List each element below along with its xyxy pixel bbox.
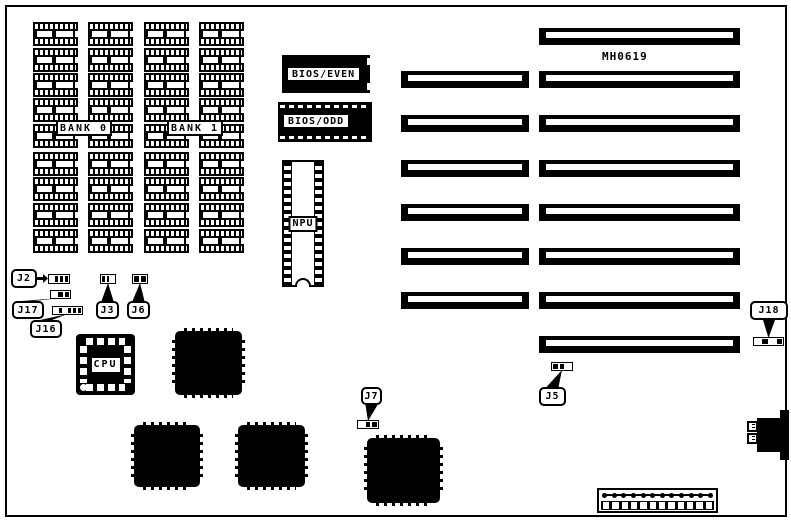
pin-row-top xyxy=(35,50,76,55)
power-socket xyxy=(640,502,646,509)
pin1-notch xyxy=(241,31,244,37)
pin-row-top xyxy=(201,179,242,184)
power-socket xyxy=(612,502,618,509)
slot-opening xyxy=(546,164,733,170)
jumper-label-j3: J3 xyxy=(96,301,119,319)
pin-row-bottom xyxy=(35,65,76,70)
chip-window xyxy=(92,186,107,192)
jumper-pin-closed xyxy=(372,422,377,427)
jumper-pin-closed xyxy=(102,276,105,282)
notch xyxy=(367,58,370,65)
pin-row-bottom xyxy=(90,169,131,174)
slot-opening xyxy=(546,208,733,214)
chip-window xyxy=(148,133,163,139)
memory-chip xyxy=(199,98,244,122)
chip-window xyxy=(92,161,107,167)
jumper-pin-closed xyxy=(553,364,558,369)
memory-chip xyxy=(88,22,133,46)
pin-ticks xyxy=(184,328,233,331)
memory-chip xyxy=(33,229,78,253)
power-pin xyxy=(698,493,703,498)
pin1-notch xyxy=(241,133,244,139)
expansion-slot-short xyxy=(401,248,529,265)
bank-1-label: BANK 1 xyxy=(167,120,223,136)
expansion-slot-long xyxy=(539,160,740,177)
contact-pads xyxy=(86,384,125,391)
jumper-pin-closed xyxy=(78,308,81,313)
pin1-notch xyxy=(130,212,133,218)
jumper-block-j6 xyxy=(132,274,148,284)
bank-0-label: BANK 0 xyxy=(56,120,112,136)
jumper-block-j3 xyxy=(100,274,116,284)
power-pin xyxy=(602,493,607,498)
jumper-block-j16 xyxy=(52,306,83,315)
bios-even-label: BIOS/EVEN xyxy=(287,67,360,81)
pin1-notch xyxy=(75,82,78,88)
memory-chip xyxy=(88,98,133,122)
pin-row-top xyxy=(35,24,76,29)
pin-row-bottom xyxy=(90,90,131,95)
slot-opening xyxy=(546,340,733,346)
contact-pads xyxy=(86,338,125,345)
pin-row-top xyxy=(90,50,131,55)
chip-window xyxy=(111,82,128,88)
plug-pins xyxy=(752,436,755,441)
chip-window xyxy=(148,212,163,218)
chip-window xyxy=(167,238,184,244)
pin-row-top xyxy=(35,179,76,184)
keyboard-connector-body xyxy=(757,418,781,452)
memory-chip xyxy=(33,48,78,72)
qfp-chip xyxy=(134,425,200,487)
chip-window xyxy=(222,133,239,139)
slot-opening xyxy=(408,75,522,81)
jumper-pin-open xyxy=(52,292,56,297)
jumper-pin-closed xyxy=(60,276,63,282)
chip-window xyxy=(92,238,107,244)
pin-row-top xyxy=(90,231,131,236)
memory-chip xyxy=(199,152,244,176)
jumper-pin-open xyxy=(111,276,114,282)
pin-row-bottom xyxy=(146,39,187,44)
chip-window xyxy=(56,238,73,244)
power-socket xyxy=(622,502,628,509)
pin1-notch xyxy=(130,161,133,167)
chip-window xyxy=(56,57,73,63)
pin-row-top xyxy=(35,154,76,159)
npu-label: NPU xyxy=(288,216,317,232)
chip-window xyxy=(37,133,52,139)
chip-window xyxy=(222,161,239,167)
pin-ticks xyxy=(247,422,296,425)
pin1-notch xyxy=(186,107,189,113)
slot-opening xyxy=(408,252,522,258)
chip-window xyxy=(203,186,218,192)
chip-window xyxy=(167,161,184,167)
jumper-pin-closed xyxy=(366,422,371,427)
pin-row-bottom xyxy=(201,65,242,70)
memory-chip xyxy=(199,177,244,201)
keyboard-connector-plug xyxy=(747,421,758,432)
chip-window xyxy=(56,31,73,37)
pin-row-top xyxy=(146,100,187,105)
jumper-block-j17 xyxy=(50,290,71,299)
cpu-label: CPU xyxy=(89,356,121,374)
memory-chip xyxy=(88,48,133,72)
memory-chip xyxy=(88,73,133,97)
pin-ticks xyxy=(376,435,431,438)
slot-opening xyxy=(408,208,522,214)
jumper-pin-open xyxy=(566,364,571,369)
pin-row-top xyxy=(201,154,242,159)
expansion-slot-short xyxy=(401,204,529,221)
pin1-marker xyxy=(80,384,87,391)
memory-chip xyxy=(33,177,78,201)
pin-row-top xyxy=(146,205,187,210)
pin-row-top xyxy=(201,75,242,80)
pin1-notch xyxy=(186,161,189,167)
chip-window xyxy=(92,82,107,88)
memory-chip xyxy=(144,203,189,227)
pin-row-bottom xyxy=(146,169,187,174)
pin-row-bottom xyxy=(35,90,76,95)
pin-row-top xyxy=(201,24,242,29)
expansion-slot-long xyxy=(539,292,740,309)
pin-row-top xyxy=(146,75,187,80)
power-pin xyxy=(689,493,694,498)
jumper-pin-closed xyxy=(65,292,69,297)
chip-window xyxy=(111,238,128,244)
slot-opening xyxy=(408,164,522,170)
power-socket xyxy=(668,502,674,509)
qfp-chip xyxy=(175,331,242,395)
pin-row-top xyxy=(35,75,76,80)
chip-window xyxy=(56,212,73,218)
pin-row-bottom xyxy=(201,141,242,146)
chip-window xyxy=(148,31,163,37)
pin-row-top xyxy=(280,105,370,108)
pin1-notch xyxy=(75,57,78,63)
power-pin xyxy=(660,493,665,498)
jumper-pin-closed xyxy=(73,308,76,313)
pin1-notch xyxy=(241,107,244,113)
memory-chip xyxy=(144,177,189,201)
power-pin xyxy=(631,493,636,498)
expansion-slot-long xyxy=(539,336,740,353)
memory-chip xyxy=(199,48,244,72)
jumper-block-j7 xyxy=(357,420,379,429)
bios-odd-chip: BIOS/ODD xyxy=(278,102,372,142)
pin-row-top xyxy=(90,100,131,105)
chip-window xyxy=(111,186,128,192)
power-socket xyxy=(687,502,693,509)
chip-window xyxy=(37,107,52,113)
part-number-label: MH0619 xyxy=(602,50,648,63)
pin1-notch xyxy=(75,107,78,113)
memory-chip xyxy=(88,152,133,176)
pin-row-bottom xyxy=(35,39,76,44)
pin1-notch xyxy=(130,31,133,37)
jumper-pin-open xyxy=(64,308,67,313)
pin1-notch xyxy=(241,186,244,192)
keyboard-connector-spine xyxy=(780,410,789,460)
pin-ticks xyxy=(364,447,367,494)
jumper-pin-closed xyxy=(560,364,565,369)
expansion-slot-short xyxy=(401,71,529,88)
chip-window xyxy=(167,212,184,218)
memory-chip xyxy=(88,177,133,201)
jumper-pin-closed xyxy=(65,276,68,282)
expansion-slot-long xyxy=(539,71,740,88)
pin1-notch xyxy=(186,31,189,37)
pin-row-bottom xyxy=(35,169,76,174)
chip-window xyxy=(111,212,128,218)
chip-window xyxy=(222,186,239,192)
slot-opening xyxy=(546,252,733,258)
pin-row-bottom xyxy=(90,220,131,225)
jumper-label-j2: J2 xyxy=(11,269,37,288)
power-socket xyxy=(603,502,609,509)
memory-chip xyxy=(144,98,189,122)
pin1-notch xyxy=(186,82,189,88)
expansion-slot-short xyxy=(401,115,529,132)
power-socket-row xyxy=(601,501,714,510)
jumper-label-j17: J17 xyxy=(12,301,44,319)
memory-chip xyxy=(144,73,189,97)
memory-chip xyxy=(33,22,78,46)
chip-window xyxy=(92,57,107,63)
expansion-slot-short xyxy=(401,292,529,309)
jumper-pin-open xyxy=(359,422,364,427)
pin-row-bottom xyxy=(146,246,187,251)
pin-ticks xyxy=(172,340,175,386)
pin-ticks xyxy=(235,434,238,478)
slot-opening xyxy=(546,75,733,81)
power-pin xyxy=(641,493,646,498)
pin-row-top xyxy=(35,100,76,105)
pin1-notch xyxy=(75,161,78,167)
jumper-label-j5: J5 xyxy=(539,387,566,406)
pin1-notch xyxy=(186,238,189,244)
pin-row-top xyxy=(201,100,242,105)
pin-row-top xyxy=(201,205,242,210)
pin-row-top xyxy=(146,154,187,159)
pin-row-bottom xyxy=(35,141,76,146)
slot-opening xyxy=(408,119,522,125)
pin-row-bottom xyxy=(201,39,242,44)
expansion-slot-long xyxy=(539,204,740,221)
pin-row-bottom xyxy=(146,65,187,70)
pin-row-bottom xyxy=(90,246,131,251)
power-pin xyxy=(650,493,655,498)
pin1-notch xyxy=(241,82,244,88)
pin-row-bottom xyxy=(35,220,76,225)
expansion-slot-short xyxy=(401,160,529,177)
chip-window xyxy=(111,107,128,113)
jumper-pin-closed xyxy=(134,276,139,282)
pin1-notch xyxy=(75,31,78,37)
jumper-pin-open xyxy=(770,339,775,344)
bios-odd-label: BIOS/ODD xyxy=(283,114,349,128)
slot-opening xyxy=(546,32,733,38)
pin1-notch xyxy=(130,107,133,113)
pin-row-bottom xyxy=(201,194,242,199)
jumper-label-j16: J16 xyxy=(30,320,62,338)
expansion-slot-long xyxy=(539,28,740,45)
bios-even-chip: BIOS/EVEN xyxy=(282,55,370,93)
cpu-socket: CPU xyxy=(76,334,135,395)
pin-row-bottom xyxy=(201,169,242,174)
pin-ticks xyxy=(440,447,443,494)
memory-chip xyxy=(199,73,244,97)
chip-window xyxy=(222,107,239,113)
npu-socket: NPU xyxy=(282,160,324,287)
power-pin xyxy=(669,493,674,498)
pin-ticks xyxy=(242,340,245,386)
pin1-notch xyxy=(75,186,78,192)
memory-chip xyxy=(199,229,244,253)
jumper-pin-closed xyxy=(762,339,767,344)
chip-window xyxy=(111,57,128,63)
pin-row-bottom xyxy=(201,246,242,251)
slot-opening xyxy=(546,296,733,302)
power-pin xyxy=(679,493,684,498)
chip-window xyxy=(148,238,163,244)
pin-row-bottom xyxy=(280,136,370,139)
chip-window xyxy=(203,82,218,88)
power-socket xyxy=(696,502,702,509)
pin-row-bottom xyxy=(90,141,131,146)
pin-row-top xyxy=(201,231,242,236)
chip-window xyxy=(56,82,73,88)
pin1-notch xyxy=(241,161,244,167)
jumper-pin-closed xyxy=(141,276,146,282)
pin-row-top xyxy=(146,179,187,184)
memory-chip xyxy=(199,22,244,46)
memory-chip xyxy=(88,229,133,253)
pin1-notch xyxy=(130,82,133,88)
chip-window xyxy=(92,31,107,37)
jumper-block-j2 xyxy=(48,274,70,284)
pin1-notch xyxy=(186,57,189,63)
chip-window xyxy=(222,31,239,37)
jumper-pin-closed xyxy=(55,276,58,282)
keyboard-connector-plug xyxy=(747,433,758,444)
chip-window xyxy=(222,238,239,244)
chip-window xyxy=(37,31,52,37)
memory-chip xyxy=(199,203,244,227)
contact-pads xyxy=(80,346,87,383)
chip-window xyxy=(37,186,52,192)
memory-chip xyxy=(144,229,189,253)
jumper-label-j6: J6 xyxy=(127,301,150,319)
jumper-label-j7: J7 xyxy=(361,387,382,405)
chip-window xyxy=(56,186,73,192)
pin-row-top xyxy=(90,179,131,184)
power-socket xyxy=(650,502,656,509)
pin-row-top xyxy=(201,50,242,55)
pin-row-top xyxy=(90,205,131,210)
pin-ticks xyxy=(247,487,296,490)
chip-window xyxy=(56,161,73,167)
slot-opening xyxy=(408,296,522,302)
jumper-pin-closed xyxy=(58,292,62,297)
chip-window xyxy=(111,31,128,37)
power-pin xyxy=(621,493,626,498)
pin-row-bottom xyxy=(35,246,76,251)
chip-window xyxy=(111,133,128,139)
power-pin-row xyxy=(602,491,713,499)
power-pin xyxy=(612,493,617,498)
chip-window xyxy=(37,57,52,63)
pin1-notch xyxy=(241,57,244,63)
chip-window xyxy=(203,31,218,37)
chip-window xyxy=(148,186,163,192)
power-socket xyxy=(631,502,637,509)
memory-chip xyxy=(33,98,78,122)
notch xyxy=(367,83,370,90)
memory-chip xyxy=(33,152,78,176)
memory-chip xyxy=(144,22,189,46)
chip-window xyxy=(167,186,184,192)
chip-window xyxy=(56,107,73,113)
chip-window xyxy=(37,238,52,244)
jumper-pin-closed xyxy=(107,276,110,282)
chip-window xyxy=(37,212,52,218)
pin1-notch xyxy=(186,186,189,192)
pin-row-bottom xyxy=(146,220,187,225)
orientation-notch xyxy=(295,278,311,287)
memory-chip xyxy=(88,203,133,227)
chip-window xyxy=(203,212,218,218)
chip-window xyxy=(111,161,128,167)
qfp-chip xyxy=(238,425,305,487)
plug-pins xyxy=(752,424,755,429)
pin-row-top xyxy=(35,205,76,210)
contact-pads xyxy=(124,346,131,383)
qfp-chip xyxy=(367,438,440,503)
pin1-notch xyxy=(241,212,244,218)
power-socket xyxy=(706,502,712,509)
pin-ticks xyxy=(200,434,203,478)
chip-window xyxy=(92,212,107,218)
pin1-notch xyxy=(186,212,189,218)
pin-row-top xyxy=(90,154,131,159)
slot-opening xyxy=(546,119,733,125)
chip-window xyxy=(203,57,218,63)
pin1-notch xyxy=(75,238,78,244)
pin1-notch xyxy=(130,186,133,192)
chip-window xyxy=(203,161,218,167)
chip-window xyxy=(148,57,163,63)
pin-ticks xyxy=(143,422,191,425)
chip-window xyxy=(37,82,52,88)
pin1-notch xyxy=(130,133,133,139)
pin-ticks xyxy=(131,434,134,478)
jumper-pin-closed xyxy=(777,339,782,344)
pin-row-bottom xyxy=(201,220,242,225)
chip-window xyxy=(222,82,239,88)
pin-row-bottom xyxy=(201,90,242,95)
chip-window xyxy=(167,82,184,88)
jumper-pin-closed xyxy=(68,308,71,313)
chip-window xyxy=(148,161,163,167)
pin-row-bottom xyxy=(90,65,131,70)
jumper-pin-open xyxy=(54,308,57,313)
chip-window xyxy=(203,238,218,244)
jumper-label-j18: J18 xyxy=(750,301,788,320)
pin-row-top xyxy=(90,75,131,80)
